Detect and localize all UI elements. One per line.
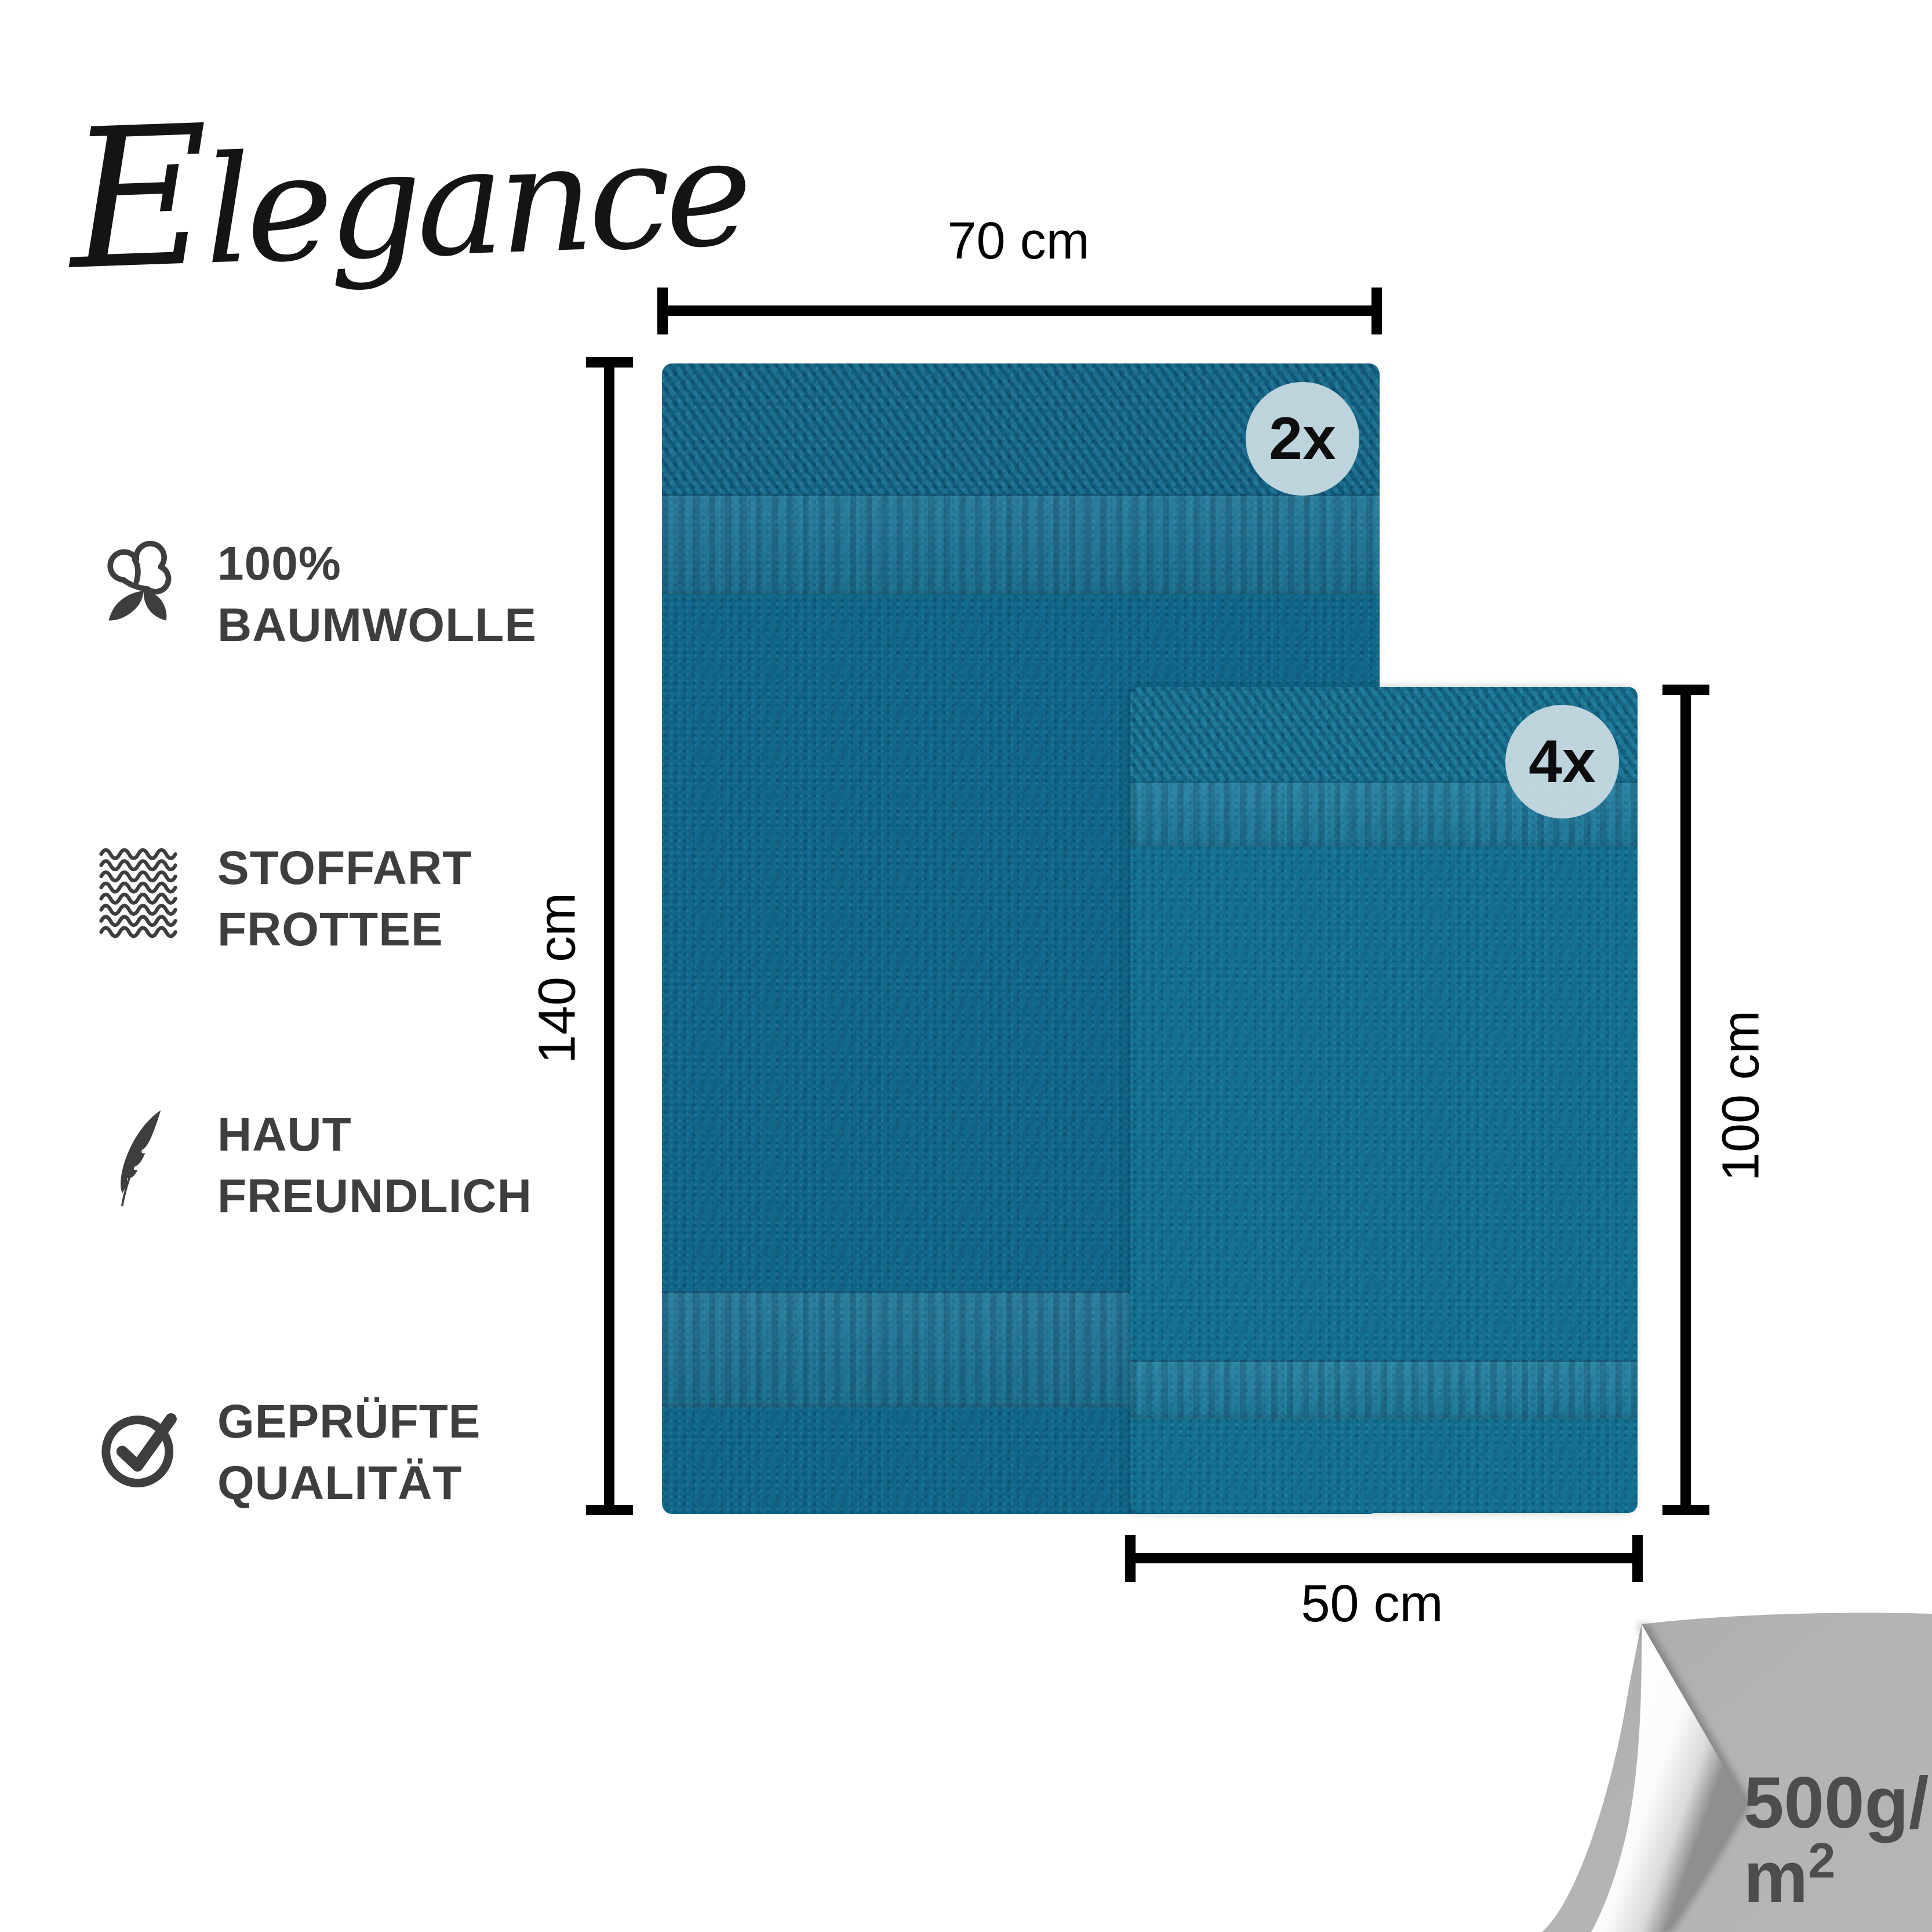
feature-line: FROTTEE bbox=[217, 899, 693, 960]
dim-tick bbox=[657, 288, 668, 334]
count-badge-large: 2x bbox=[1246, 382, 1359, 496]
dim-label-140cm: 140 cm bbox=[528, 854, 588, 1103]
feature-line: STOFFART bbox=[217, 838, 693, 899]
dim-line-100cm bbox=[1680, 690, 1691, 1510]
dim-tick bbox=[1371, 288, 1382, 334]
dim-label-100cm: 100 cm bbox=[1712, 972, 1771, 1221]
feature-line: FREUNDLICH bbox=[217, 1166, 693, 1227]
dim-tick bbox=[1662, 685, 1709, 695]
product-infographic: Elegance 100% BAUMWOLLE bbox=[0, 0, 1932, 1932]
towel-small-bottom-band bbox=[1130, 1360, 1638, 1418]
feature-line: BAUMWOLLE bbox=[217, 595, 693, 656]
feature-text: STOFFART FROTTEE bbox=[217, 838, 693, 960]
feature-text: 100% BAUMWOLLE bbox=[217, 533, 693, 656]
cotton-icon bbox=[93, 533, 191, 641]
feature-line: GEPRÜFTE bbox=[217, 1391, 693, 1453]
count-badge-small: 4x bbox=[1505, 705, 1619, 818]
feature-line: 100% bbox=[217, 533, 693, 595]
fabric-knit-icon bbox=[93, 838, 191, 945]
feature-text: HAUT FREUNDLICH bbox=[217, 1104, 693, 1227]
brand-logo: Elegance bbox=[65, 54, 631, 345]
feather-icon bbox=[93, 1104, 191, 1211]
dim-tick bbox=[1125, 1535, 1136, 1582]
feature-line: HAUT bbox=[217, 1104, 693, 1166]
feature-text: GEPRÜFTE QUALITÄT bbox=[217, 1391, 693, 1514]
dim-tick bbox=[586, 1505, 633, 1515]
check-circle-icon bbox=[93, 1391, 191, 1498]
towel-large-top-band bbox=[662, 494, 1380, 594]
page-curl: 500g/ m2 bbox=[1526, 1526, 1932, 1932]
dim-line-140cm bbox=[604, 362, 614, 1510]
weight-label-line1: 500g/ bbox=[1744, 1763, 1929, 1843]
dim-label-70cm: 70 cm bbox=[894, 212, 1143, 271]
dim-tick bbox=[586, 357, 633, 368]
dim-tick bbox=[1662, 1505, 1709, 1515]
dim-label-50cm: 50 cm bbox=[1247, 1574, 1497, 1634]
dim-line-70cm bbox=[663, 305, 1377, 316]
